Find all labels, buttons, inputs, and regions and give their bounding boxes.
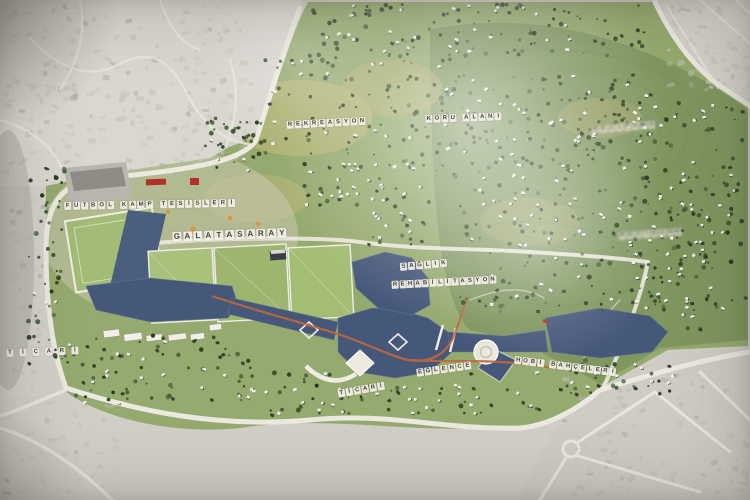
red-roof-building <box>190 178 199 185</box>
masterplan-photo: REKREASYONKORUALANIREZİDANSFUTBOLKAMPTES… <box>0 0 750 500</box>
red-roof-building <box>146 179 166 186</box>
terrain-art <box>0 0 750 500</box>
